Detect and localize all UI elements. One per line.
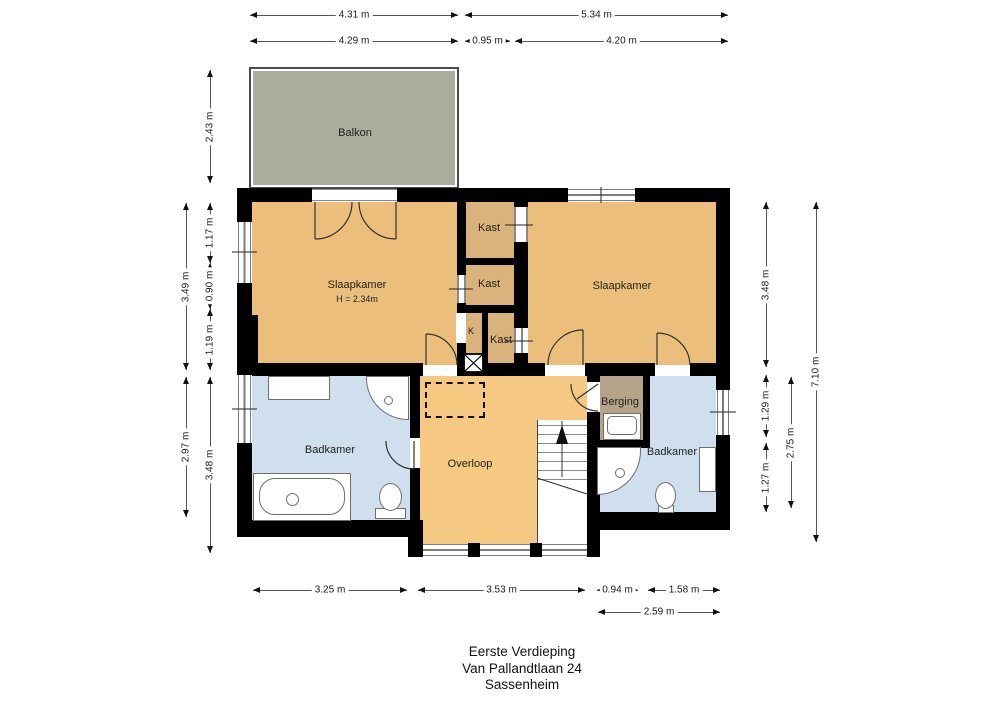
room-label-slaapkamer-left-height: H = 2.34m bbox=[336, 294, 378, 304]
bathtub bbox=[253, 473, 351, 521]
toilet-bowl bbox=[379, 483, 402, 511]
toilet-bowl bbox=[655, 482, 676, 509]
title-floor: Eerste Verdieping bbox=[244, 644, 800, 661]
wall bbox=[410, 468, 420, 537]
wall bbox=[514, 353, 528, 363]
window bbox=[542, 544, 587, 556]
bathroom-cabinet bbox=[699, 447, 716, 492]
window bbox=[238, 375, 251, 443]
floorplan-canvas: Balkon Slaapkamer H = 2.34m Kast Kast K … bbox=[0, 0, 1000, 707]
bathtub-faucet bbox=[286, 493, 299, 506]
room-label-balkon: Balkon bbox=[338, 127, 372, 139]
sink-drain bbox=[384, 396, 393, 405]
room-label-kast-mid: Kast bbox=[478, 278, 500, 290]
closet-door-opening bbox=[456, 313, 466, 343]
balcony-door-opening bbox=[312, 189, 397, 201]
storage-sink bbox=[603, 413, 641, 440]
stairs bbox=[537, 420, 587, 544]
title-block: Eerste Verdieping Van Pallandtlaan 24 Sa… bbox=[244, 644, 800, 694]
wall bbox=[585, 363, 655, 376]
storage-sink-inner bbox=[607, 416, 637, 435]
room-label-badkamer-left: Badkamer bbox=[305, 444, 355, 456]
window bbox=[717, 390, 729, 435]
wall bbox=[457, 305, 528, 313]
room-label-slaapkamer-left: Slaapkamer bbox=[328, 279, 387, 291]
room-label-k-shaft: K bbox=[468, 326, 474, 336]
room-label-overloop: Overloop bbox=[448, 458, 493, 470]
room-label-kast-top: Kast bbox=[478, 222, 500, 234]
wall bbox=[457, 343, 466, 363]
room-label-berging: Berging bbox=[601, 396, 639, 408]
closet-door-symbol bbox=[457, 275, 466, 303]
stair-treads bbox=[538, 425, 587, 482]
wall bbox=[252, 363, 423, 376]
wall bbox=[690, 363, 716, 376]
wall bbox=[237, 188, 252, 222]
wall bbox=[468, 543, 480, 557]
window bbox=[423, 544, 468, 556]
wall bbox=[482, 313, 488, 363]
wall bbox=[410, 376, 420, 438]
washstand bbox=[268, 376, 330, 400]
wall bbox=[397, 188, 568, 202]
room-label-kast-bottom: Kast bbox=[490, 334, 512, 346]
overloop-dashed-void bbox=[425, 382, 485, 418]
room-label-badkamer-right: Badkamer bbox=[647, 446, 697, 458]
title-city: Sassenheim bbox=[244, 677, 800, 694]
window bbox=[480, 544, 530, 556]
wall bbox=[457, 258, 528, 265]
wall bbox=[600, 512, 730, 530]
closet-door-symbol bbox=[514, 328, 523, 353]
wall bbox=[643, 376, 650, 448]
wall bbox=[514, 242, 528, 328]
bathtub-inner bbox=[259, 478, 345, 515]
wall bbox=[587, 376, 600, 382]
shower-drain bbox=[615, 468, 625, 478]
wall bbox=[530, 543, 542, 557]
closet-door-symbol bbox=[514, 207, 528, 242]
window bbox=[238, 222, 251, 283]
title-address: Van Pallandtlaan 24 bbox=[244, 661, 800, 678]
wall bbox=[237, 520, 420, 537]
room-label-slaapkamer-right: Slaapkamer bbox=[593, 280, 652, 292]
wall bbox=[716, 188, 730, 390]
window bbox=[568, 189, 635, 201]
wall bbox=[457, 363, 545, 376]
